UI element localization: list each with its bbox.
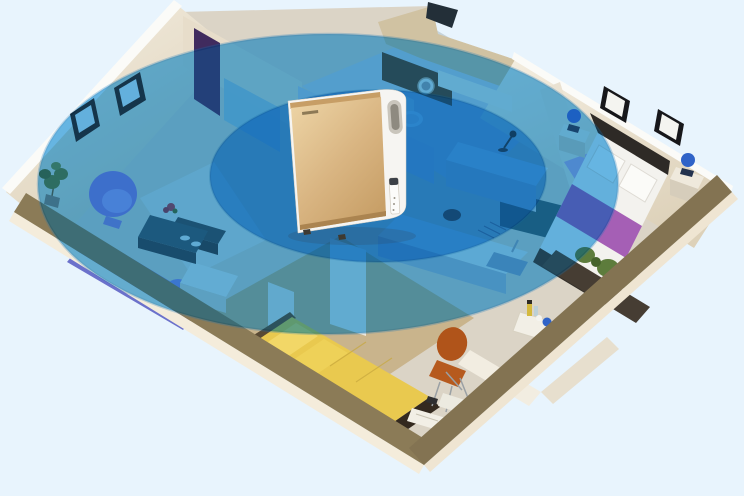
bottle-glass (534, 306, 538, 316)
apartment-render (0, 0, 744, 496)
purifier-gold-panel (291, 97, 386, 230)
purifier-display (389, 178, 398, 185)
purifier-foot (338, 234, 346, 240)
bedside-lamp (681, 153, 695, 167)
purifier-indicator-dot (393, 203, 395, 205)
product-scene (0, 0, 744, 496)
purifier-indicator-dot (394, 197, 396, 199)
purifier-foot (303, 229, 311, 235)
purifier-indicator-dot (393, 209, 395, 211)
bottle-yellow (527, 303, 532, 316)
white-cup (536, 315, 542, 321)
bottle-cap (527, 300, 532, 304)
planter-foliage (591, 257, 601, 267)
